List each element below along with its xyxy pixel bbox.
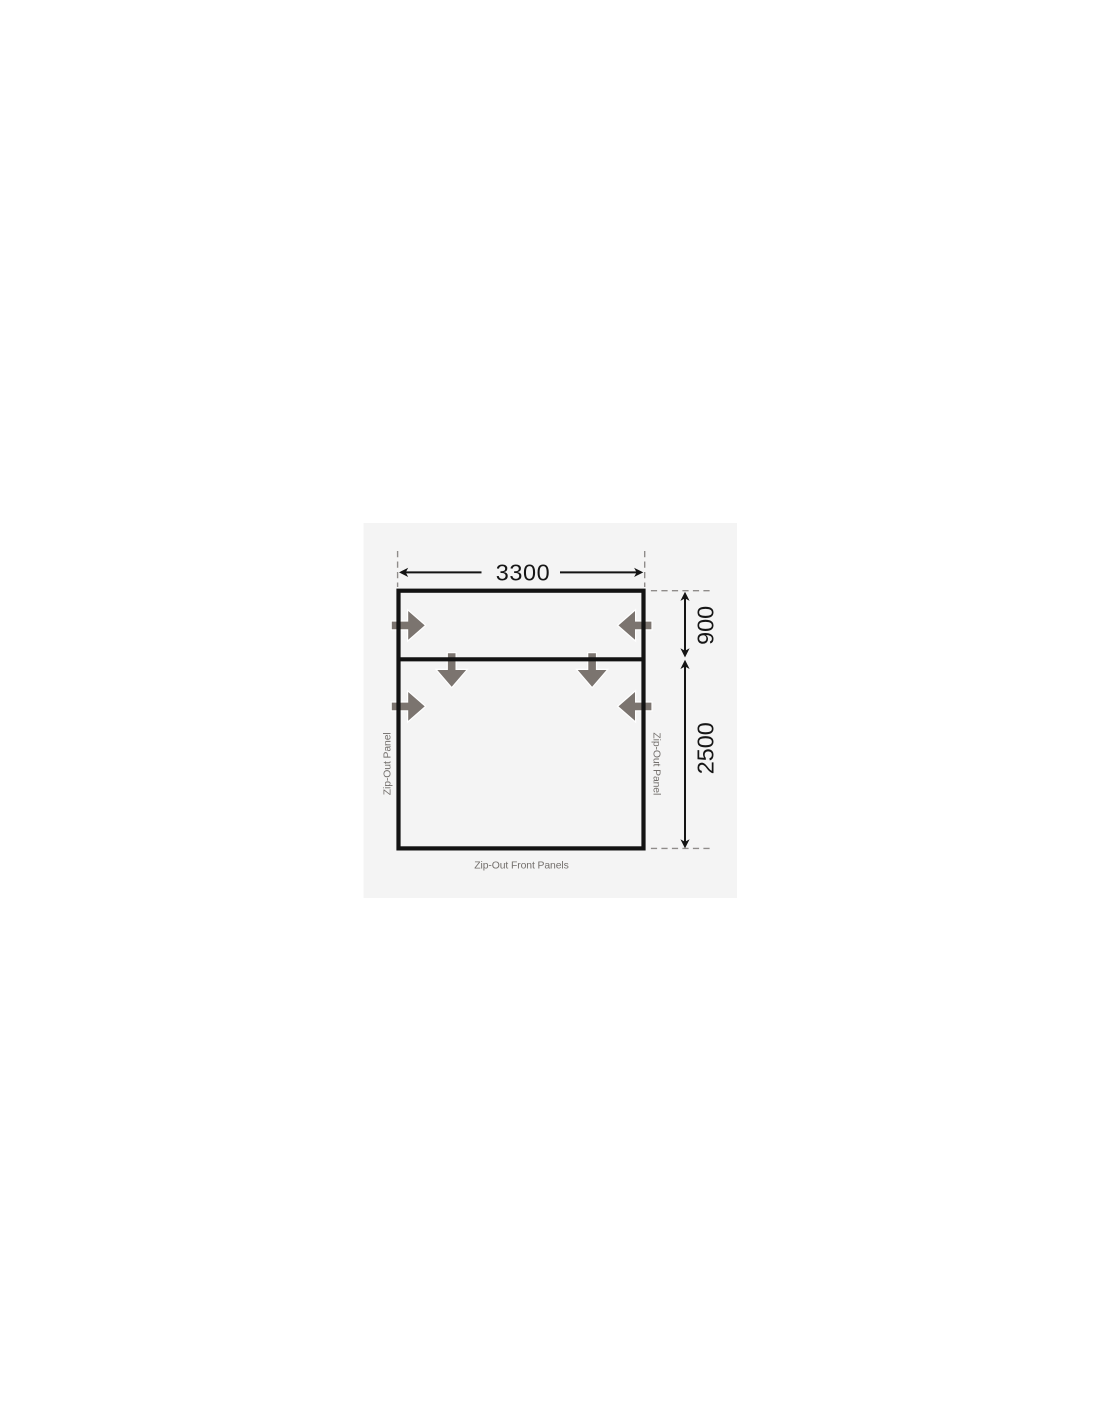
svg-text:Zip-Out Panel: Zip-Out Panel bbox=[651, 732, 662, 795]
svg-text:Zip-Out Front Panels: Zip-Out Front Panels bbox=[474, 861, 568, 872]
svg-text:3300: 3300 bbox=[496, 560, 550, 586]
svg-text:2500: 2500 bbox=[693, 722, 719, 774]
svg-text:900: 900 bbox=[693, 606, 719, 645]
svg-text:Zip-Out Panel: Zip-Out Panel bbox=[382, 732, 393, 795]
